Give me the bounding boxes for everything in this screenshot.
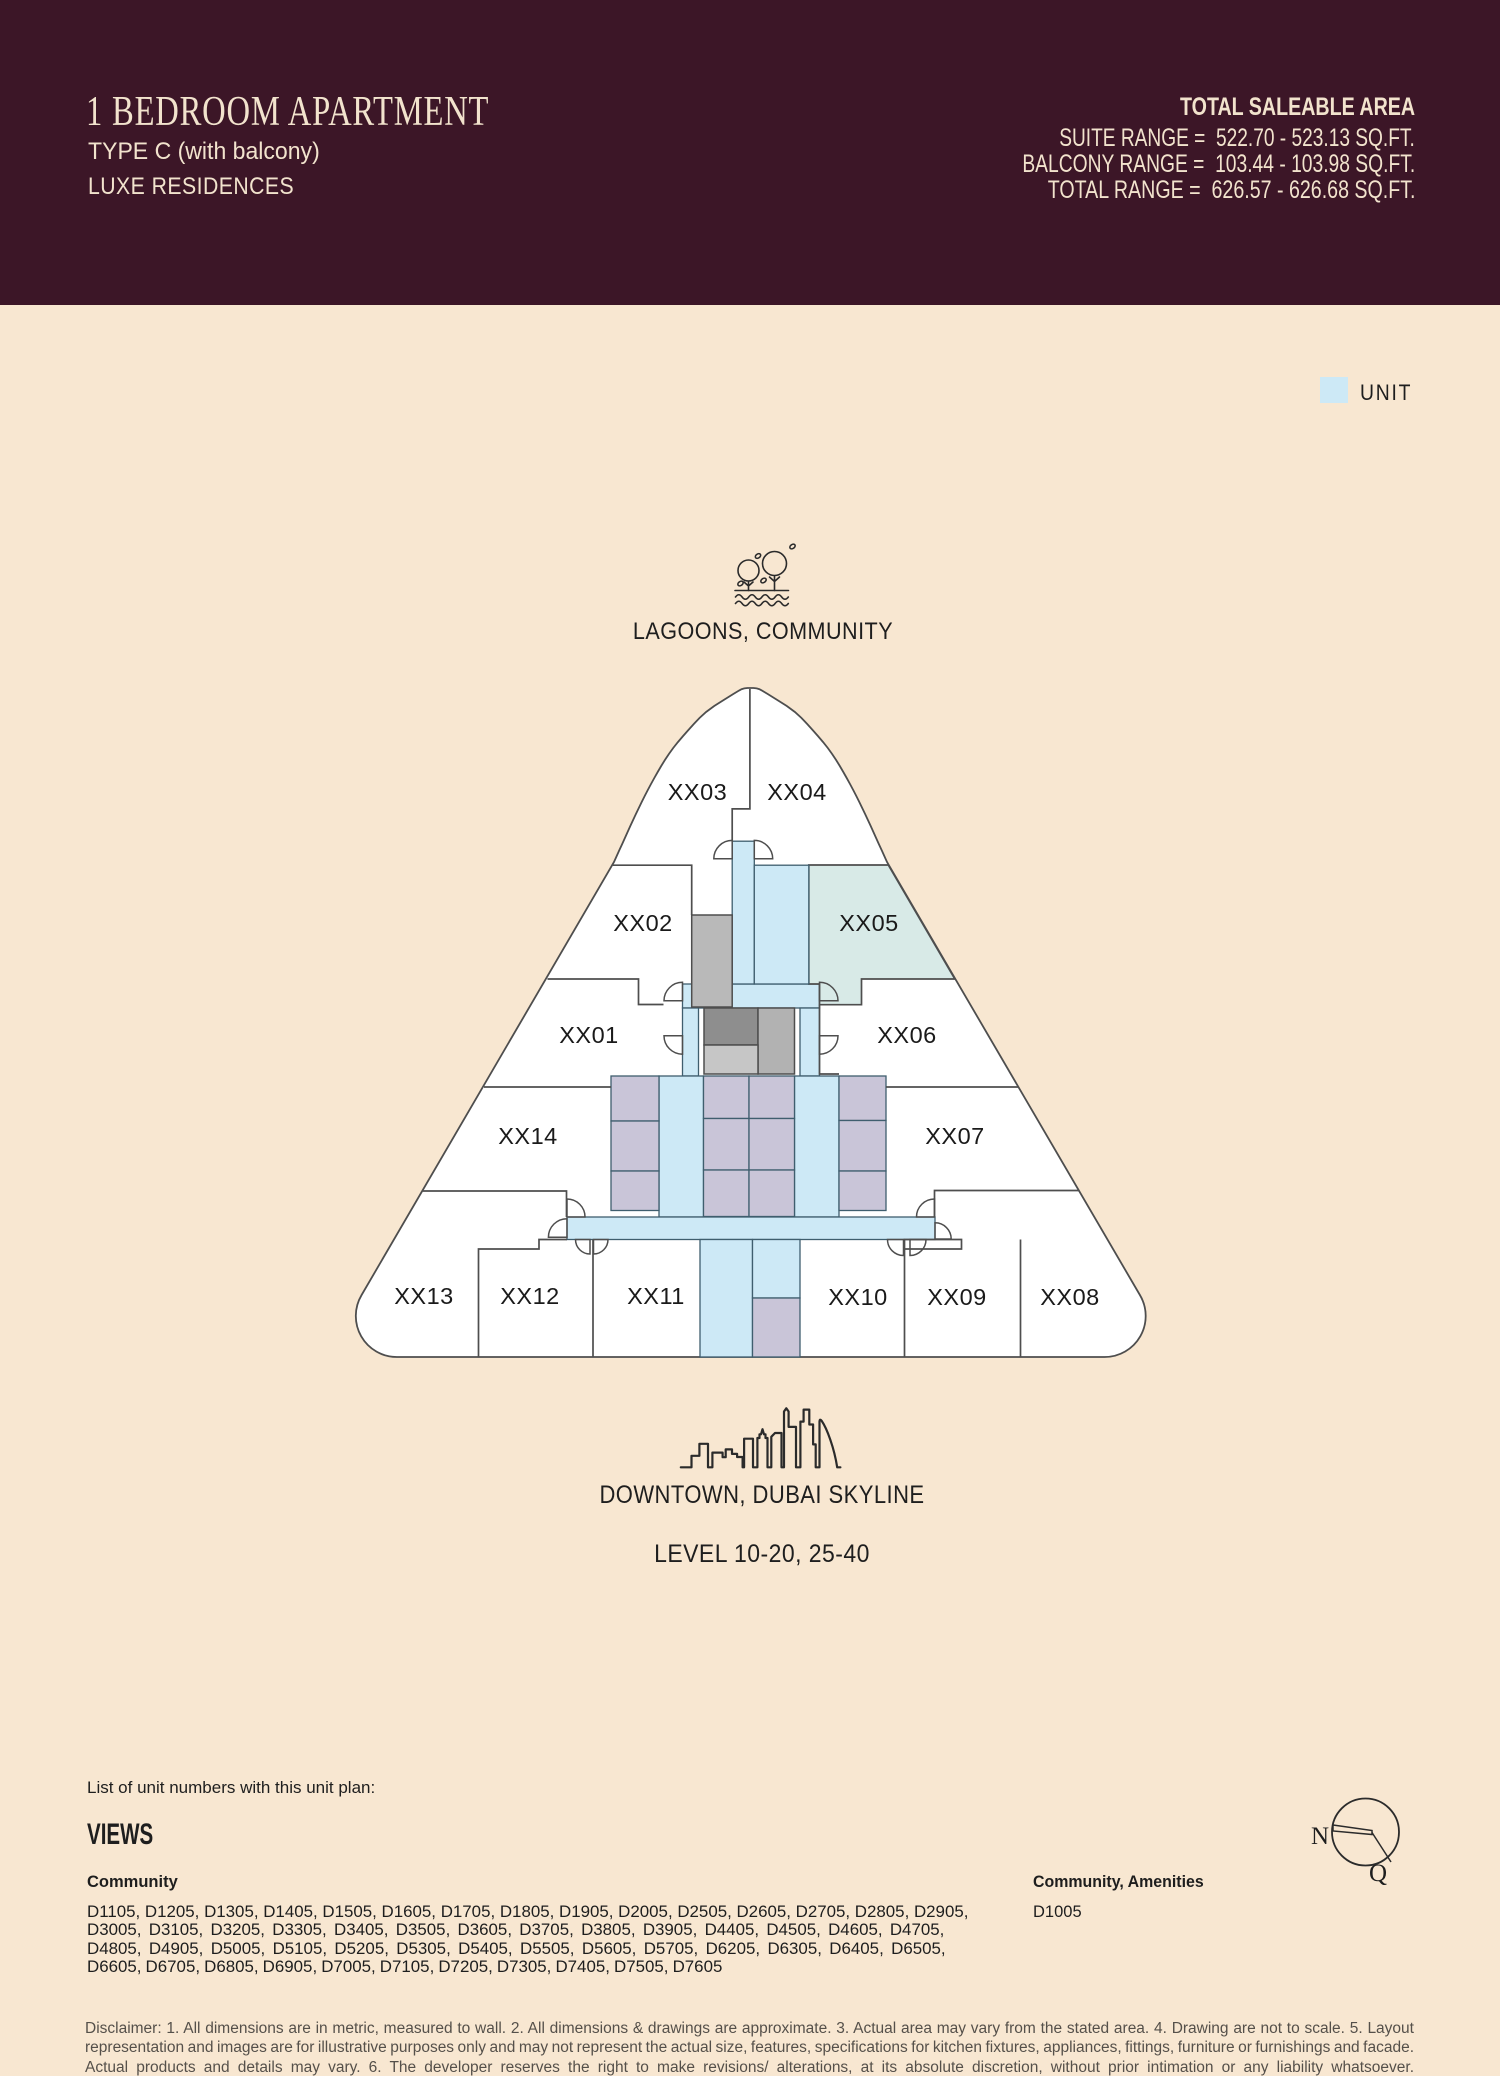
- svg-text:XX01: XX01: [559, 1022, 619, 1048]
- svg-text:XX12: XX12: [500, 1283, 560, 1309]
- svg-text:XX14: XX14: [498, 1123, 558, 1149]
- svg-text:XX04: XX04: [767, 779, 827, 805]
- svg-text:XX08: XX08: [1040, 1284, 1100, 1310]
- svg-text:XX02: XX02: [613, 910, 673, 936]
- svg-text:XX03: XX03: [668, 779, 728, 805]
- svg-text:XX09: XX09: [927, 1284, 987, 1310]
- svg-text:XX10: XX10: [828, 1284, 888, 1310]
- svg-text:XX11: XX11: [627, 1283, 685, 1309]
- svg-text:XX13: XX13: [394, 1283, 454, 1309]
- svg-text:XX05: XX05: [839, 910, 899, 936]
- svg-text:N: N: [1311, 1823, 1329, 1850]
- svg-text:XX06: XX06: [877, 1022, 937, 1048]
- svg-text:XX07: XX07: [925, 1123, 985, 1149]
- svg-text:Q: Q: [1369, 1860, 1387, 1887]
